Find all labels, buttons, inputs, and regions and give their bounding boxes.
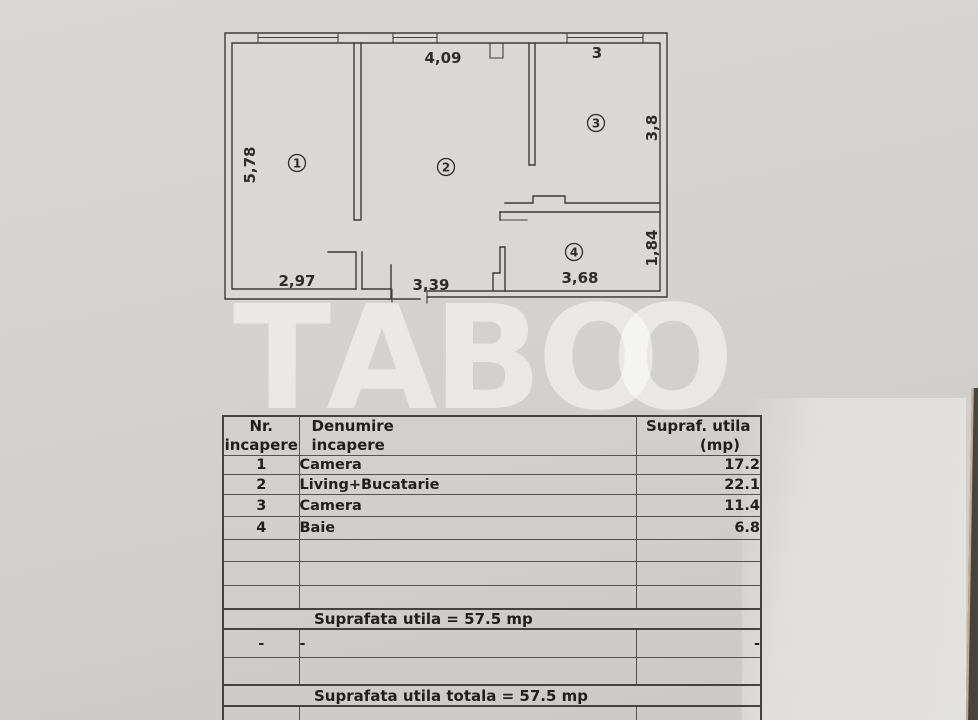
table-row: 1 Camera 17.2 <box>223 456 761 475</box>
header-nr-incapere: Nr. incapere <box>223 416 299 456</box>
table-row: 3 Camera 11.4 <box>223 495 761 517</box>
dim-top-room3: 3 <box>592 44 602 62</box>
room-area-cell: 6.8 <box>636 517 761 540</box>
room2-number: 2 <box>442 161 450 175</box>
table-row: 2 Living+Bucatarie 22.1 <box>223 475 761 495</box>
empty-row <box>223 562 761 586</box>
summary-utila-row: Suprafata utila = 57.5 mp <box>223 609 761 629</box>
header-suprafata: Supraf. utila (mp) <box>636 416 761 456</box>
summary-totala: Suprafata utila totala = 57.5 mp <box>223 685 761 706</box>
room-nr-cell: 1 <box>223 456 299 475</box>
area-table-wrap: Nr. incapere Denumire incapere Supraf. u… <box>222 415 762 720</box>
room-name-cell: Baie <box>299 517 636 540</box>
room-nr-cell: 4 <box>223 517 299 540</box>
dim-bottom-room2: 3,39 <box>412 276 449 294</box>
room-areas-table: Nr. incapere Denumire incapere Supraf. u… <box>222 415 762 720</box>
cut-off-row <box>223 706 761 720</box>
empty-row <box>223 658 761 686</box>
room3-number: 3 <box>592 117 600 131</box>
dash-cell: - <box>299 629 636 658</box>
room-name-cell: Living+Bucatarie <box>299 475 636 495</box>
room-name-cell: Camera <box>299 495 636 517</box>
dim-bottom-room4: 3,68 <box>561 269 598 287</box>
photographed-floorplan-document: TABOO 4,09 3 5,78 3,8 1,84 2,97 3,39 3,6… <box>0 0 978 720</box>
dim-bottom-room1: 2,97 <box>278 272 315 290</box>
room-area-cell: 11.4 <box>636 495 761 517</box>
room1-number: 1 <box>293 157 301 171</box>
summary-totala-row: Suprafata utila totala = 57.5 mp <box>223 685 761 706</box>
dash-cell: - <box>636 629 761 658</box>
summary-utila: Suprafata utila = 57.5 mp <box>223 609 761 629</box>
table-row: 4 Baie 6.8 <box>223 517 761 540</box>
room4-number: 4 <box>570 246 578 260</box>
room-nr-cell: 2 <box>223 475 299 495</box>
dim-top-room2: 4,09 <box>424 49 461 67</box>
dim-left-room1: 5,78 <box>241 146 259 183</box>
dim-right-room4: 1,84 <box>643 229 661 266</box>
dim-right-room3: 3,8 <box>643 115 661 142</box>
header-denumire: Denumire incapere <box>299 416 636 456</box>
empty-row <box>223 540 761 562</box>
room-name-cell: Camera <box>299 456 636 475</box>
room-nr-cell: 3 <box>223 495 299 517</box>
dash-cell: - <box>223 629 299 658</box>
dash-row: - - - <box>223 629 761 658</box>
room-area-cell: 22.1 <box>636 475 761 495</box>
table-header-row: Nr. incapere Denumire incapere Supraf. u… <box>223 416 761 456</box>
empty-row <box>223 586 761 610</box>
room-area-cell: 17.2 <box>636 456 761 475</box>
